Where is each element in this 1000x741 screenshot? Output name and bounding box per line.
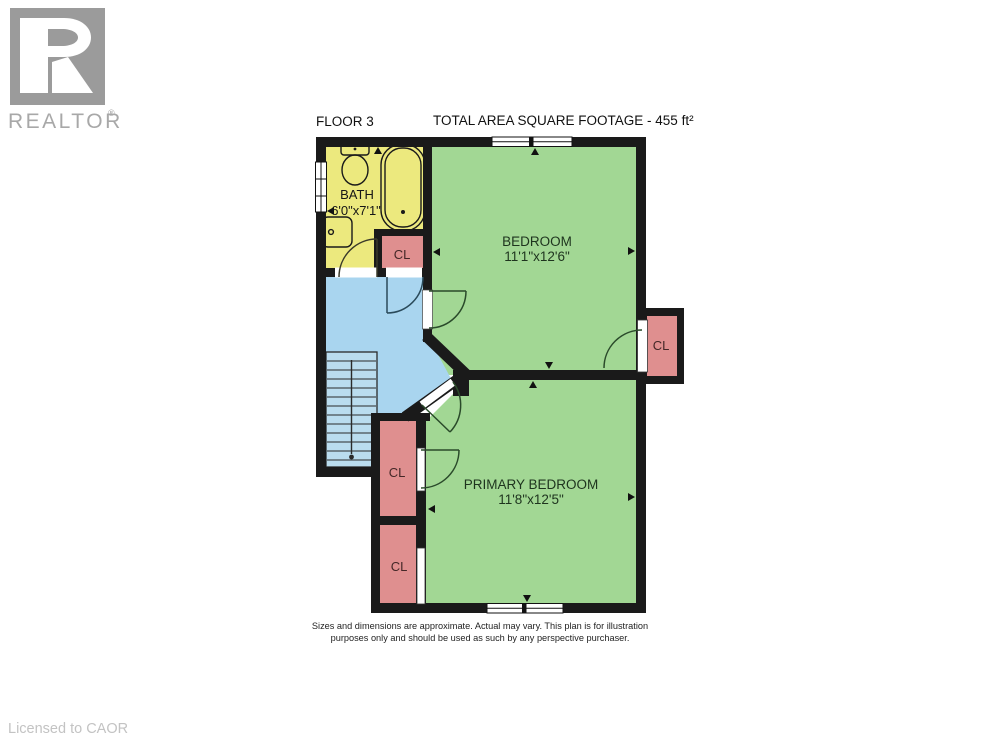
disclaimer-line1: Sizes and dimensions are approximate. Ac…: [312, 621, 648, 631]
closet-primary-upper-label: CL: [389, 465, 406, 480]
floor-label: FLOOR 3: [316, 114, 374, 129]
floor-plan-canvas: REALTOR ® FLOOR 3 TOTAL AREA SQUARE FOOT…: [0, 0, 1000, 741]
bath-doorway-gap: [335, 268, 377, 278]
closet-primary-lower-doorway-gap: [417, 548, 425, 604]
bedroom-dims-label: 11'1"x12'6": [504, 249, 570, 264]
floor-plan-page: REALTOR ® FLOOR 3 TOTAL AREA SQUARE FOOT…: [0, 0, 1000, 741]
license-text: Licensed to CAOR: [8, 721, 128, 737]
wall-top: [316, 137, 646, 147]
bathtub-drain-dot: [401, 210, 405, 214]
wall-closet-divider: [371, 516, 426, 525]
primary-bedroom-dims-label: 11'8"x12'5": [498, 492, 564, 507]
wall-bedroom-bottom: [464, 370, 646, 380]
registered-trademark-symbol: ®: [108, 108, 115, 118]
staircase: [326, 352, 377, 467]
wall-closet-bath-top: [374, 229, 432, 236]
primary-bedroom-label: PRIMARY BEDROOM: [464, 477, 599, 492]
closet-bedroom-doorway-gap: [638, 320, 648, 372]
closet-primary-upper-doorway-gap: [417, 448, 425, 491]
realtor-logo-r-stem: [20, 18, 48, 93]
disclaimer-line2: purposes only and should be used as such…: [331, 633, 630, 643]
bath-dims-label: 6'0"x7'1": [331, 203, 381, 218]
realtor-logo-icon: [10, 8, 105, 105]
closet-bath-doorway-gap: [386, 268, 422, 278]
bedroom-window-divider: [530, 137, 534, 147]
wall-hall-bottom: [316, 467, 380, 477]
bedroom-label: BEDROOM: [502, 234, 572, 249]
total-area-label: TOTAL AREA SQUARE FOOTAGE - 455 ft²: [433, 113, 694, 128]
closet-bedroom-label: CL: [653, 338, 670, 353]
realtor-logo-r-counter: [48, 29, 78, 46]
realtor-wordmark: REALTOR: [8, 110, 123, 133]
closet-primary-lower-label: CL: [391, 559, 408, 574]
bedroom-doorway-gap: [423, 290, 433, 329]
bath-label: BATH: [340, 187, 374, 202]
toilet-flush-dot: [354, 148, 357, 151]
primary-window-divider: [523, 604, 527, 614]
stair-direction-dot: [349, 455, 354, 460]
closet-bath-label: CL: [394, 247, 411, 262]
wall-closet-col-left: [371, 413, 380, 613]
